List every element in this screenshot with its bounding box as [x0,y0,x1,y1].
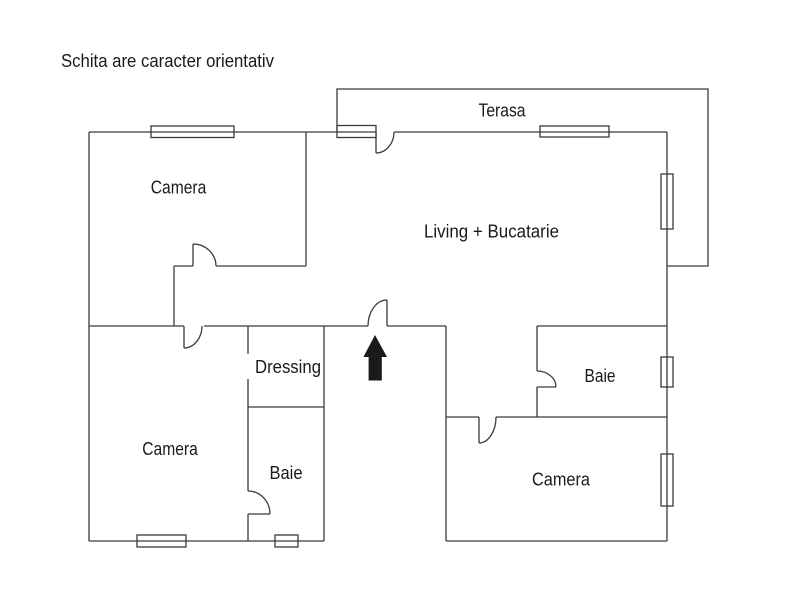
svg-text:Camera: Camera [532,470,591,490]
svg-text:Living + Bucatarie: Living + Bucatarie [424,222,559,242]
svg-text:Camera: Camera [142,439,198,459]
svg-text:Schita are caracter orientativ: Schita are caracter orientativ [61,51,274,71]
svg-text:Baie: Baie [585,366,616,386]
svg-text:Camera: Camera [151,178,207,198]
svg-text:Baie: Baie [270,463,303,483]
svg-text:Dressing: Dressing [255,357,321,377]
svg-text:Terasa: Terasa [479,101,527,121]
